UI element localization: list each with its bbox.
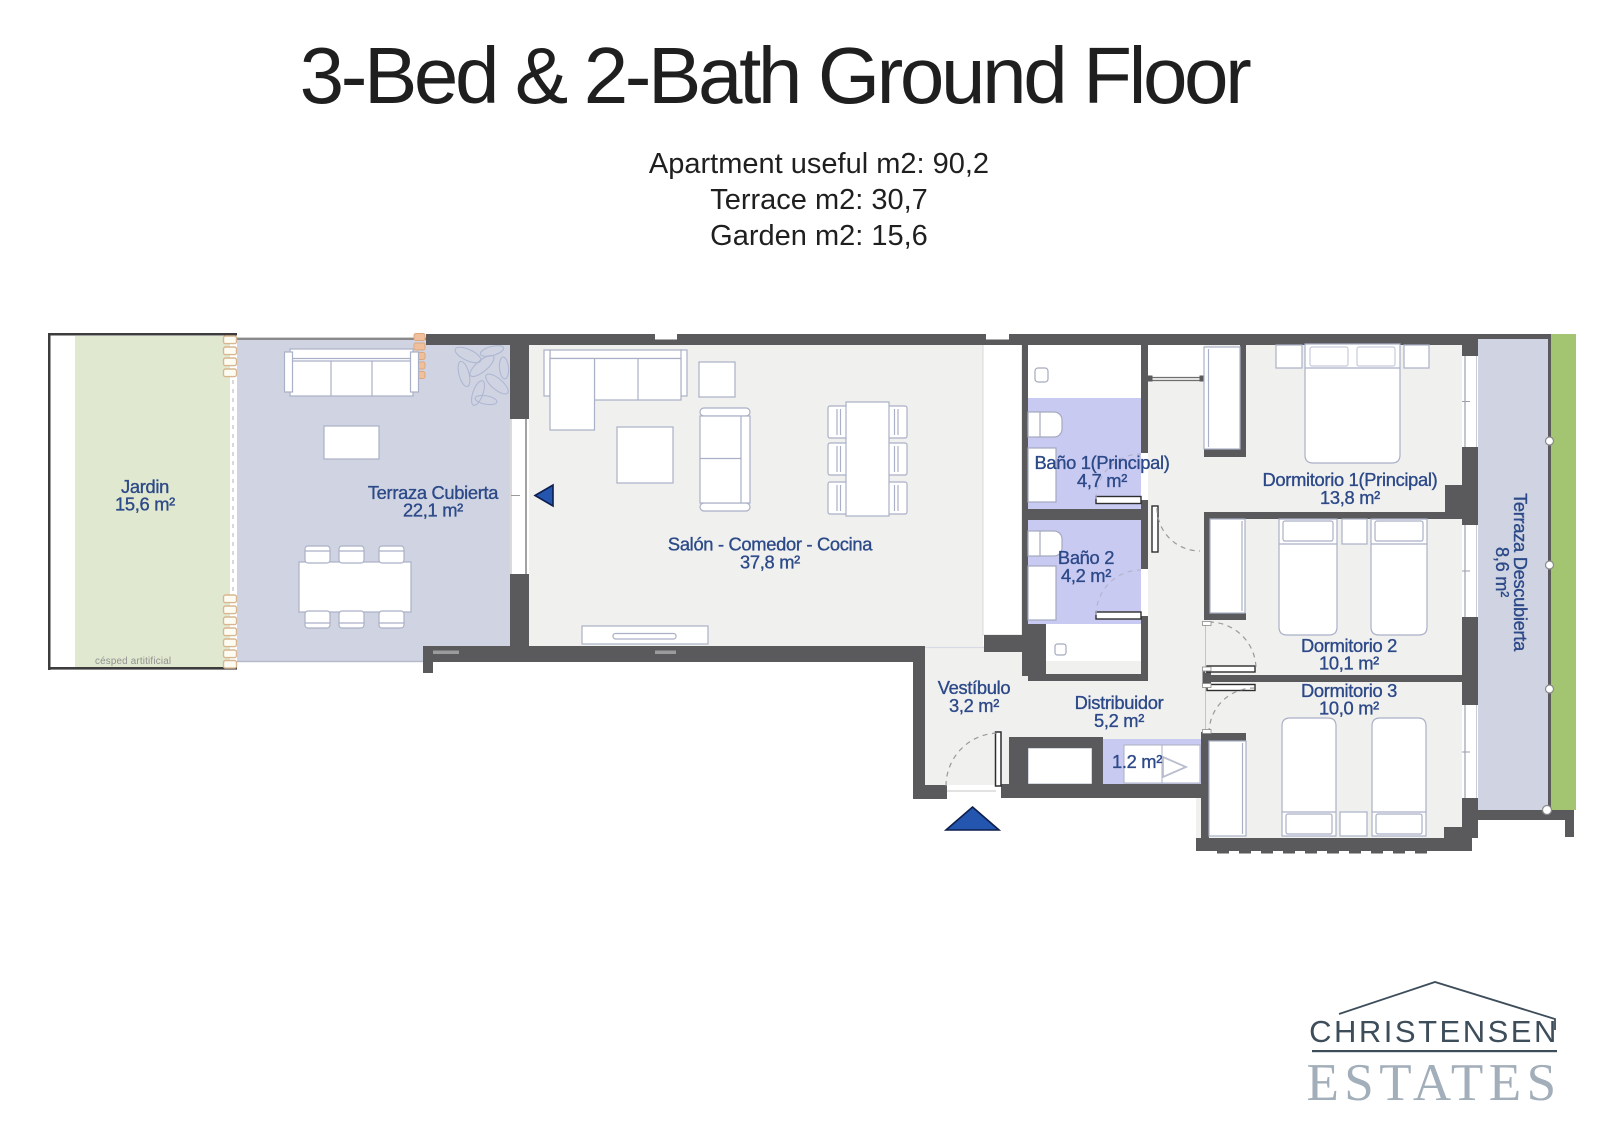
- svg-text:10,0 m²: 10,0 m²: [1319, 698, 1379, 719]
- svg-text:22,1 m²: 22,1 m²: [403, 500, 463, 521]
- svg-text:4,7 m²: 4,7 m²: [1077, 470, 1127, 491]
- svg-text:3,2 m²: 3,2 m²: [949, 695, 999, 716]
- svg-text:13,8 m²: 13,8 m²: [1320, 487, 1380, 508]
- svg-text:CHRISTENSEN: CHRISTENSEN: [1309, 1014, 1559, 1049]
- svg-text:10,1 m²: 10,1 m²: [1319, 653, 1379, 674]
- svg-text:césped artitificial: césped artitificial: [95, 656, 171, 667]
- svg-text:1.2 m²: 1.2 m²: [1112, 751, 1162, 772]
- svg-text:15,6 m²: 15,6 m²: [115, 494, 175, 515]
- svg-text:5,2 m²: 5,2 m²: [1094, 710, 1144, 731]
- svg-text:ESTATES: ESTATES: [1306, 1054, 1561, 1112]
- svg-text:8,6 m²: 8,6 m²: [1492, 547, 1513, 597]
- svg-text:4,2 m²: 4,2 m²: [1061, 565, 1111, 586]
- svg-text:37,8 m²: 37,8 m²: [740, 552, 800, 573]
